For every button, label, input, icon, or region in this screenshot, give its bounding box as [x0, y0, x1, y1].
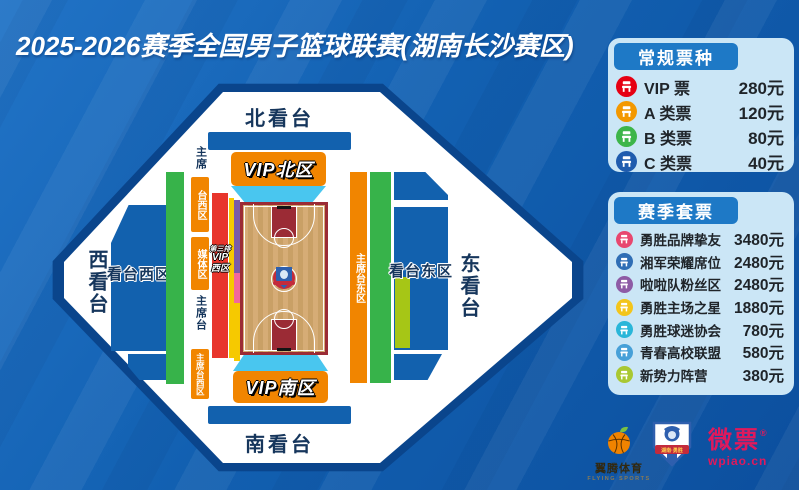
- ticket-label: 青春高校联盟: [640, 342, 721, 362]
- chair-icon: [616, 253, 633, 270]
- ticket-row-b: B 类票 80元: [616, 124, 784, 149]
- ticket-label: B 类票: [644, 125, 692, 149]
- west-chair-label-top: 主席: [190, 146, 210, 176]
- ticket-label: 啦啦队粉丝区: [640, 274, 721, 294]
- season-row-7: 新势力阵营 380元: [616, 364, 784, 387]
- lion-team-badge: 湖南·勇胜: [650, 421, 694, 467]
- south-stand-zone[interactable]: [208, 406, 351, 424]
- lion-badge-text: 湖南·勇胜: [650, 447, 694, 454]
- ticket-label: 湘军荣耀席位: [640, 252, 721, 272]
- vip-south-zone[interactable]: VIP南区: [233, 371, 328, 403]
- free-throw-circle-top: [274, 228, 294, 248]
- season-row-6: 青春高校联盟 580元: [616, 341, 784, 364]
- ticket-price: 780元: [743, 319, 784, 341]
- north-stand-label: 北看台: [208, 102, 351, 131]
- team-logo-center-court: [273, 266, 295, 292]
- west-chair-box-top[interactable]: 台西区: [190, 176, 210, 233]
- ticket-label: A 类票: [644, 100, 691, 124]
- chair-icon: [616, 151, 637, 172]
- ticket-label: C 类票: [644, 150, 692, 174]
- wpiao-logo: 微票® wpiao.cn: [708, 429, 788, 468]
- chair-icon: [616, 76, 637, 97]
- vip-north-label: VIP北区: [243, 156, 313, 182]
- east-lime-zone[interactable]: [395, 277, 410, 348]
- cyan-zone-south[interactable]: [233, 354, 328, 371]
- wpiao-url: wpiao.cn: [708, 454, 788, 468]
- ticket-row-a: A 类票 120元: [616, 99, 784, 124]
- lion-shield-icon: [650, 421, 694, 467]
- flying-sports-name-cn: 翼腾体育: [584, 460, 654, 476]
- east-chair-zone[interactable]: 主席台东区: [350, 172, 367, 383]
- backboard-bottom: [277, 348, 291, 351]
- season-row-3: 啦啦队粉丝区 2480元: [616, 273, 784, 296]
- ticket-price: 120元: [739, 99, 784, 124]
- third-row-vip-west-zone[interactable]: [212, 193, 228, 358]
- regular-tickets-panel: 常规票种 VIP 票 280元 A 类票 120元 B 类票 80元 C 类票 …: [608, 38, 794, 172]
- vip-north-zone[interactable]: VIP北区: [231, 152, 326, 186]
- free-throw-circle-bottom: [274, 309, 294, 329]
- ticket-price: 1880元: [734, 296, 784, 318]
- ticket-row-c: C 类票 40元: [616, 149, 784, 174]
- south-stand-label: 南看台: [208, 428, 351, 457]
- regular-tickets-header: 常规票种: [614, 43, 738, 70]
- ticket-price: 280元: [739, 74, 784, 99]
- chair-icon: [616, 231, 633, 248]
- season-row-1: 勇胜品牌挚友 3480元: [616, 228, 784, 251]
- season-row-4: 勇胜主场之星 1880元: [616, 296, 784, 319]
- west-green-zone[interactable]: [166, 172, 184, 384]
- east-stand-label: 东看台: [454, 248, 483, 324]
- chair-icon: [616, 101, 637, 122]
- north-stand-zone[interactable]: [208, 132, 351, 150]
- chair-icon: [616, 344, 633, 361]
- registered-mark: ®: [760, 428, 769, 438]
- east-block-label: 看台东区: [381, 260, 461, 281]
- chair-icon: [616, 276, 633, 293]
- chair-icon: [616, 299, 633, 316]
- regular-tickets-list: VIP 票 280元 A 类票 120元 B 类票 80元 C 类票 40元: [608, 72, 794, 174]
- wpiao-name: 微票®: [708, 429, 788, 453]
- ticket-price: 80元: [748, 124, 784, 149]
- vip-south-label: VIP南区: [245, 374, 315, 400]
- chair-icon: [616, 126, 637, 147]
- page-title: 2025-2026赛季全国男子篮球联赛(湖南长沙赛区): [16, 26, 561, 63]
- ticket-price: 40元: [748, 149, 784, 174]
- ticket-price: 3480元: [734, 228, 784, 250]
- court-floor: [243, 205, 325, 352]
- ticket-label: 勇胜主场之星: [640, 297, 721, 317]
- flying-sports-name-en: FLYING SPORTS: [584, 476, 654, 482]
- season-row-5: 勇胜球迷协会 780元: [616, 318, 784, 341]
- ticket-label: 新势力阵营: [640, 365, 708, 385]
- ticket-price: 2480元: [734, 273, 784, 295]
- ticket-label: 勇胜球迷协会: [640, 320, 721, 340]
- season-row-2: 湘军荣耀席位 2480元: [616, 251, 784, 274]
- flying-sports-logo: 翼腾体育 FLYING SPORTS: [584, 425, 654, 482]
- east-chair-label: 主席台东区: [354, 253, 364, 303]
- third-row-vip-west-label: 第三排 VIP 西区: [196, 246, 244, 273]
- basketball-court: [240, 202, 328, 355]
- stadium-map: 北看台 VIP北区 VIP南区 南看台 西看台 看台西区 主席 台西区 媒体区 …: [58, 88, 578, 468]
- ticket-price: 2480元: [734, 251, 784, 273]
- season-tickets-list: 勇胜品牌挚友 3480元 湘军荣耀席位 2480元 啦啦队粉丝区 2480元 勇…: [608, 226, 794, 386]
- ticket-label: VIP 票: [644, 75, 690, 99]
- chair-icon: [616, 366, 633, 383]
- season-tickets-header: 赛季套票: [614, 197, 738, 224]
- backboard-top: [277, 206, 291, 209]
- cyan-zone-north[interactable]: [231, 186, 326, 202]
- ticket-label: 勇胜品牌挚友: [640, 229, 721, 249]
- west-chair-label-mid: 主席台: [190, 295, 210, 345]
- season-tickets-panel: 赛季套票 勇胜品牌挚友 3480元 湘军荣耀席位 2480元 啦啦队粉丝区 24…: [608, 192, 794, 395]
- basketball-icon: [604, 425, 634, 455]
- ticket-row-vip: VIP 票 280元: [616, 74, 784, 99]
- west-chair-box-bottom[interactable]: 主席台西区: [190, 348, 210, 400]
- ticket-price: 380元: [743, 364, 784, 386]
- chair-icon: [616, 321, 633, 338]
- ticket-price: 580元: [743, 341, 784, 363]
